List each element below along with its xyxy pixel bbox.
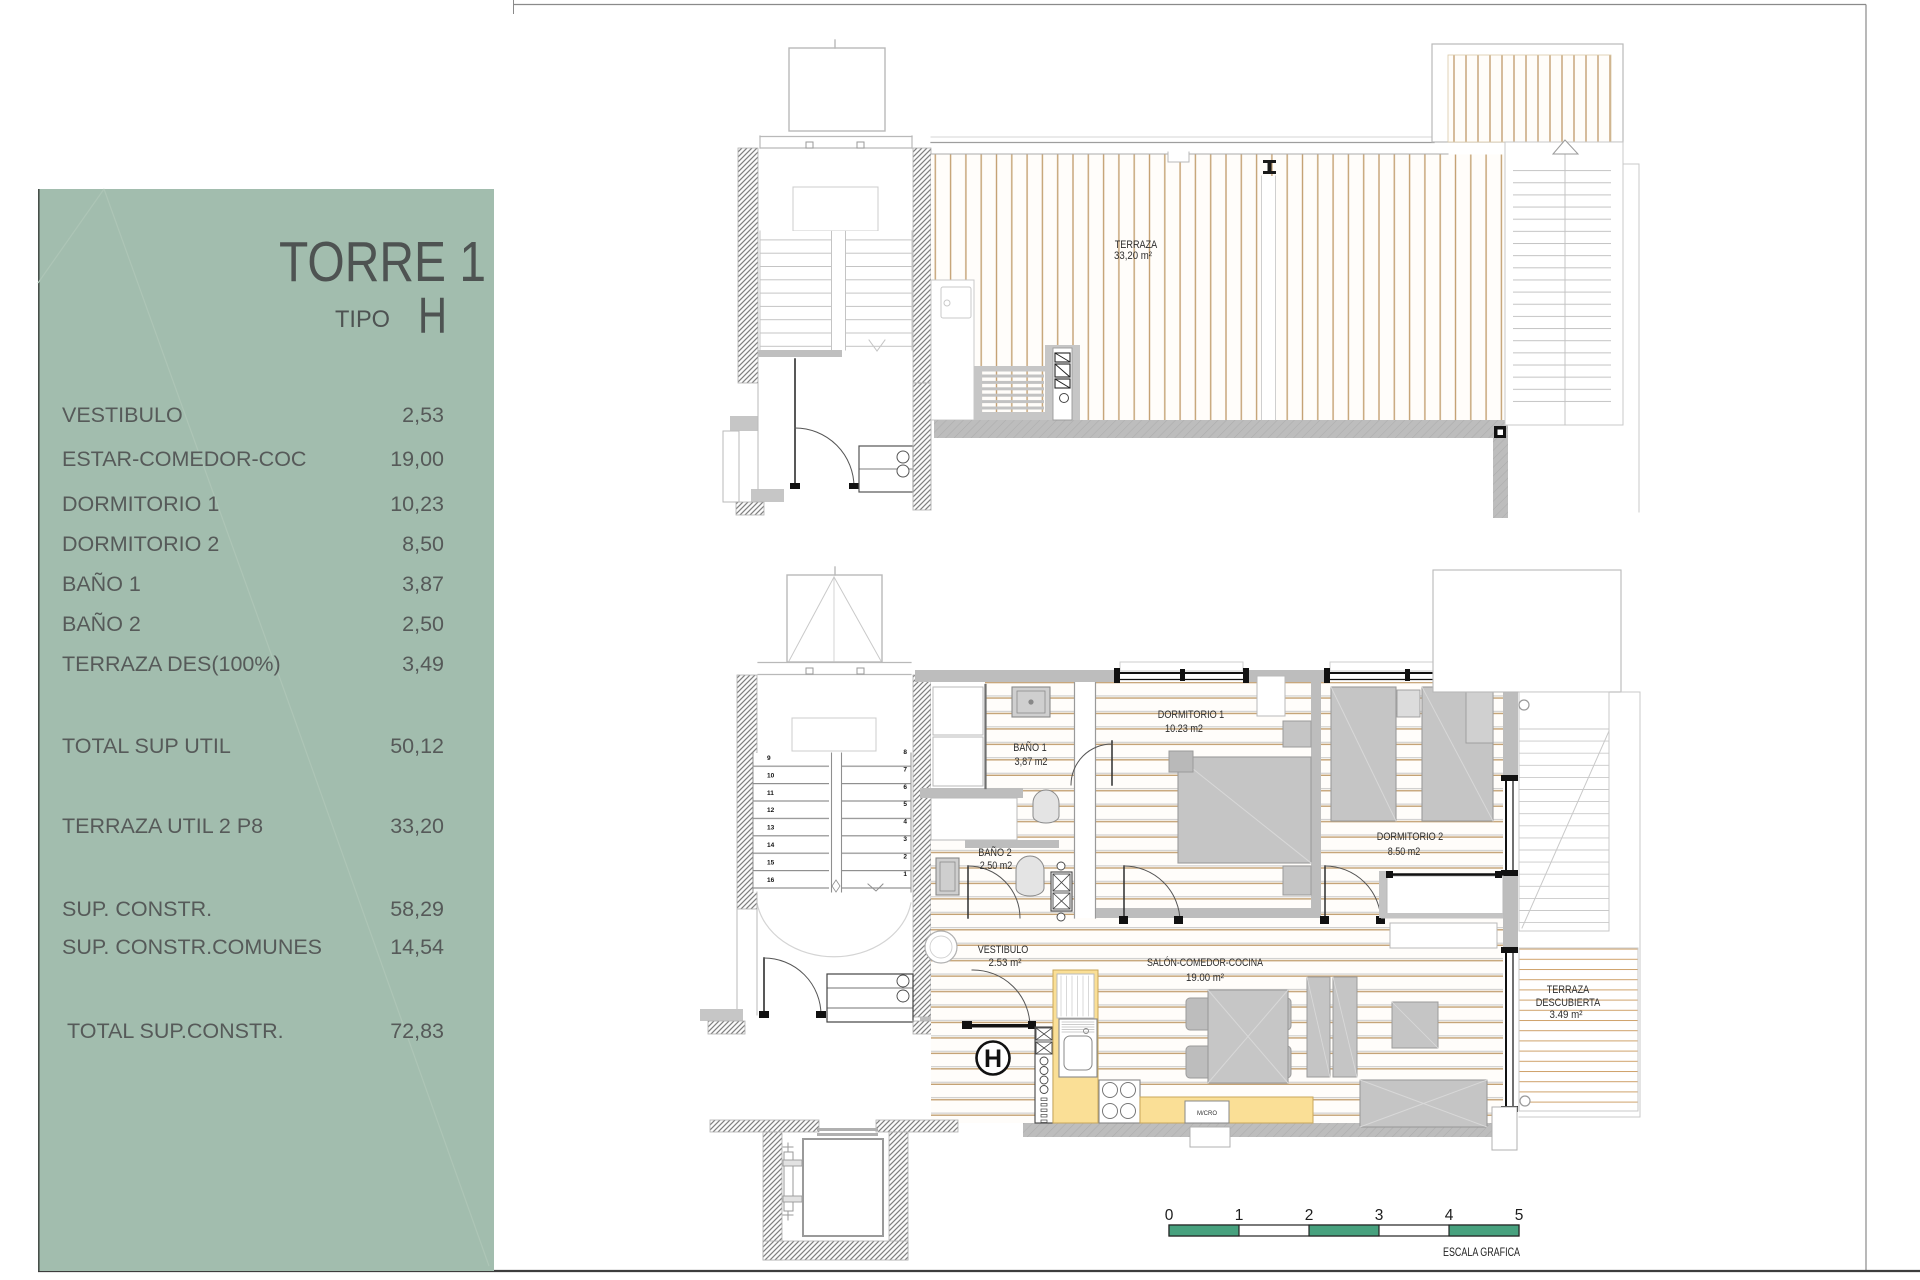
- svg-text:50,12: 50,12: [390, 734, 444, 758]
- svg-text:7: 7: [903, 766, 907, 773]
- svg-text:TORRE 1: TORRE 1: [279, 230, 486, 294]
- svg-text:19,00: 19,00: [390, 447, 444, 471]
- svg-text:58,29: 58,29: [390, 897, 444, 921]
- svg-text:8: 8: [903, 749, 907, 756]
- svg-text:TERRAZA: TERRAZA: [1547, 984, 1590, 996]
- svg-text:TOTAL SUP.CONSTR.: TOTAL SUP.CONSTR.: [67, 1019, 284, 1043]
- svg-text:BAÑO 1: BAÑO 1: [1013, 741, 1047, 754]
- svg-text:5: 5: [903, 801, 907, 808]
- svg-text:15: 15: [767, 859, 775, 866]
- svg-text:4: 4: [903, 819, 907, 826]
- svg-text:19.00 m²: 19.00 m²: [1186, 972, 1224, 984]
- svg-text:10.23 m2: 10.23 m2: [1165, 723, 1203, 735]
- svg-text:SUP. CONSTR.COMUNES: SUP. CONSTR.COMUNES: [62, 935, 322, 959]
- svg-text:SUP. CONSTR.: SUP. CONSTR.: [62, 897, 212, 921]
- svg-text:8,50: 8,50: [402, 532, 444, 556]
- svg-text:2: 2: [903, 853, 907, 860]
- svg-text:ESCALA GRAFICA: ESCALA GRAFICA: [1443, 1247, 1520, 1259]
- svg-text:33,20 m²: 33,20 m²: [1114, 250, 1152, 262]
- svg-text:SALÓN-COMEDOR-COCINA: SALÓN-COMEDOR-COCINA: [1147, 956, 1264, 969]
- svg-text:H: H: [984, 1045, 1002, 1073]
- svg-text:DORMITORIO 1: DORMITORIO 1: [62, 492, 219, 516]
- svg-text:1: 1: [903, 871, 907, 878]
- svg-text:DORMITORIO 2: DORMITORIO 2: [1377, 831, 1444, 843]
- svg-text:3: 3: [903, 836, 907, 843]
- svg-text:DORMITORIO 1: DORMITORIO 1: [1158, 709, 1225, 721]
- svg-text:9: 9: [767, 755, 771, 762]
- svg-text:2.53 m²: 2.53 m²: [989, 957, 1022, 969]
- svg-text:2,53: 2,53: [402, 403, 444, 427]
- svg-text:3,49: 3,49: [402, 652, 444, 676]
- svg-text:DESCUBIERTA: DESCUBIERTA: [1536, 997, 1601, 1009]
- svg-text:14: 14: [767, 842, 775, 849]
- svg-text:10,23: 10,23: [390, 492, 444, 516]
- svg-text:14,54: 14,54: [390, 935, 444, 959]
- svg-text:DORMITORIO 2: DORMITORIO 2: [62, 532, 219, 556]
- svg-text:2: 2: [1305, 1207, 1314, 1224]
- svg-text:VESTIBULO: VESTIBULO: [62, 403, 183, 427]
- svg-text:BAÑO 2: BAÑO 2: [62, 611, 141, 636]
- svg-text:3,87: 3,87: [402, 572, 444, 596]
- svg-text:TERRAZA UTIL 2 P8: TERRAZA UTIL 2 P8: [62, 814, 263, 838]
- svg-text:2.50 m2: 2.50 m2: [980, 860, 1013, 872]
- svg-text:BAÑO 1: BAÑO 1: [62, 571, 141, 596]
- svg-text:4: 4: [1445, 1207, 1454, 1224]
- svg-text:TOTAL SUP UTIL: TOTAL SUP UTIL: [62, 734, 231, 758]
- svg-text:72,83: 72,83: [390, 1019, 444, 1043]
- svg-text:1: 1: [1235, 1207, 1244, 1224]
- svg-text:3.49 m²: 3.49 m²: [1550, 1009, 1583, 1021]
- svg-text:M/CRO: M/CRO: [1197, 1111, 1217, 1117]
- svg-text:16: 16: [767, 877, 775, 884]
- svg-text:6: 6: [903, 784, 907, 791]
- svg-text:11: 11: [767, 790, 774, 797]
- svg-text:VESTIBULO: VESTIBULO: [978, 944, 1029, 956]
- svg-text:0: 0: [1165, 1207, 1174, 1224]
- svg-text:ESTAR-COMEDOR-COC: ESTAR-COMEDOR-COC: [62, 447, 306, 471]
- svg-text:33,20: 33,20: [390, 814, 444, 838]
- svg-text:10: 10: [767, 772, 775, 779]
- svg-text:8.50 m2: 8.50 m2: [1388, 846, 1421, 858]
- svg-text:TERRAZA DES(100%): TERRAZA DES(100%): [62, 652, 281, 676]
- svg-text:TIPO: TIPO: [335, 306, 390, 333]
- svg-text:BAÑO 2: BAÑO 2: [978, 846, 1012, 859]
- svg-text:5: 5: [1515, 1207, 1524, 1224]
- svg-text:H: H: [418, 287, 447, 344]
- svg-text:13: 13: [767, 825, 775, 832]
- svg-text:2,50: 2,50: [402, 612, 444, 636]
- svg-text:12: 12: [767, 807, 775, 814]
- svg-text:3,87 m2: 3,87 m2: [1015, 756, 1048, 768]
- svg-text:3: 3: [1375, 1207, 1384, 1224]
